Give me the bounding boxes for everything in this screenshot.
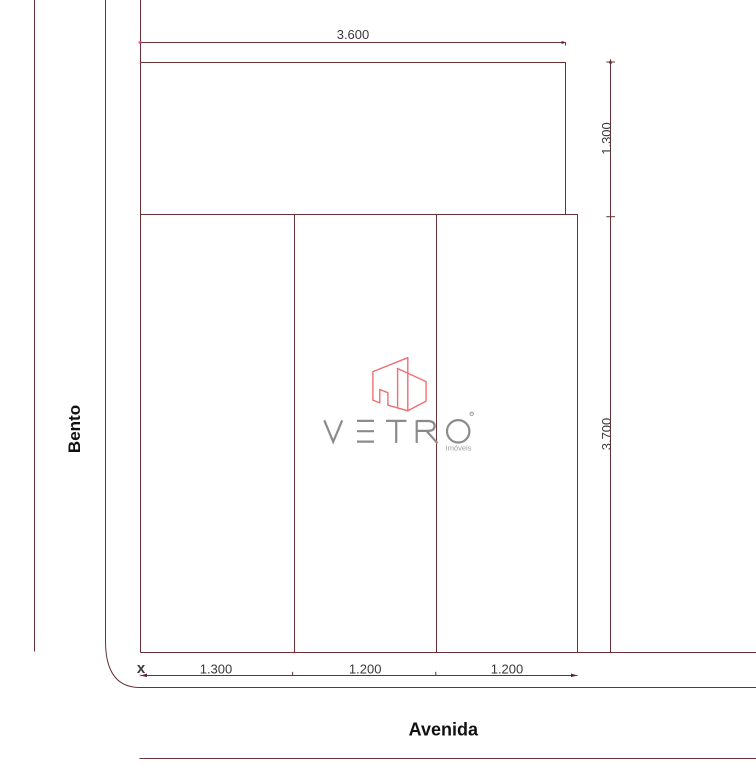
- svg-text:3.600: 3.600: [337, 27, 370, 42]
- svg-text:1.200: 1.200: [491, 662, 524, 677]
- svg-text:1.200: 1.200: [349, 662, 382, 677]
- svg-text:x: x: [137, 660, 146, 677]
- svg-text:Bento: Bento: [65, 405, 84, 453]
- svg-text:3.700: 3.700: [599, 418, 614, 451]
- svg-text:1.300: 1.300: [200, 662, 233, 677]
- svg-text:Imóveis: Imóveis: [446, 443, 472, 452]
- svg-text:Avenida: Avenida: [409, 720, 479, 740]
- svg-text:1.300: 1.300: [599, 122, 614, 155]
